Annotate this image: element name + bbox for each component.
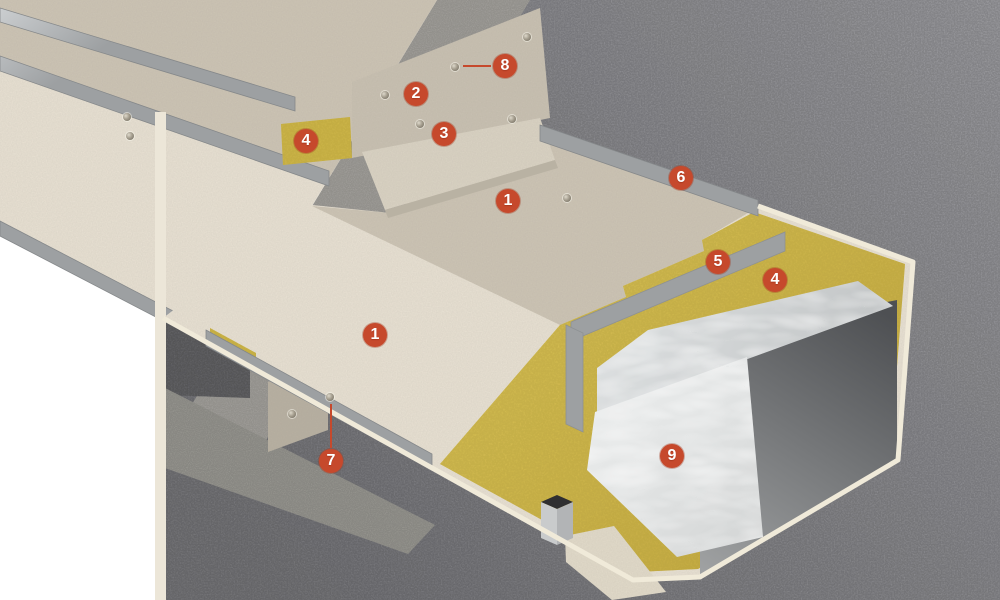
callout-marker-4: 4 [294, 129, 318, 153]
callout-marker-4: 4 [763, 268, 787, 292]
screw-fixing [523, 33, 531, 41]
screw-fixing [451, 63, 459, 71]
screw-fixing [326, 393, 334, 401]
callout-marker-3: 3 [432, 122, 456, 146]
callout-marker-9: 9 [660, 444, 684, 468]
callout-marker-6: 6 [669, 166, 693, 190]
callout-marker-5: 5 [706, 250, 730, 274]
screw-fixing [126, 132, 134, 140]
screw-fixing [381, 91, 389, 99]
screw-fixing [416, 120, 424, 128]
screw-fixing [288, 410, 296, 418]
illustration-stage: 11234456789 [0, 0, 1000, 600]
annotation-layer: 11234456789 [0, 0, 1000, 600]
screw-fixing [563, 194, 571, 202]
callout-leader-line [330, 404, 332, 448]
callout-marker-1: 1 [363, 323, 387, 347]
callout-marker-7: 7 [319, 449, 343, 473]
screw-fixing [123, 113, 131, 121]
callout-marker-2: 2 [404, 82, 428, 106]
screw-fixing [508, 115, 516, 123]
callout-leader-line [463, 65, 491, 67]
callout-marker-8: 8 [493, 54, 517, 78]
callout-marker-1: 1 [496, 189, 520, 213]
